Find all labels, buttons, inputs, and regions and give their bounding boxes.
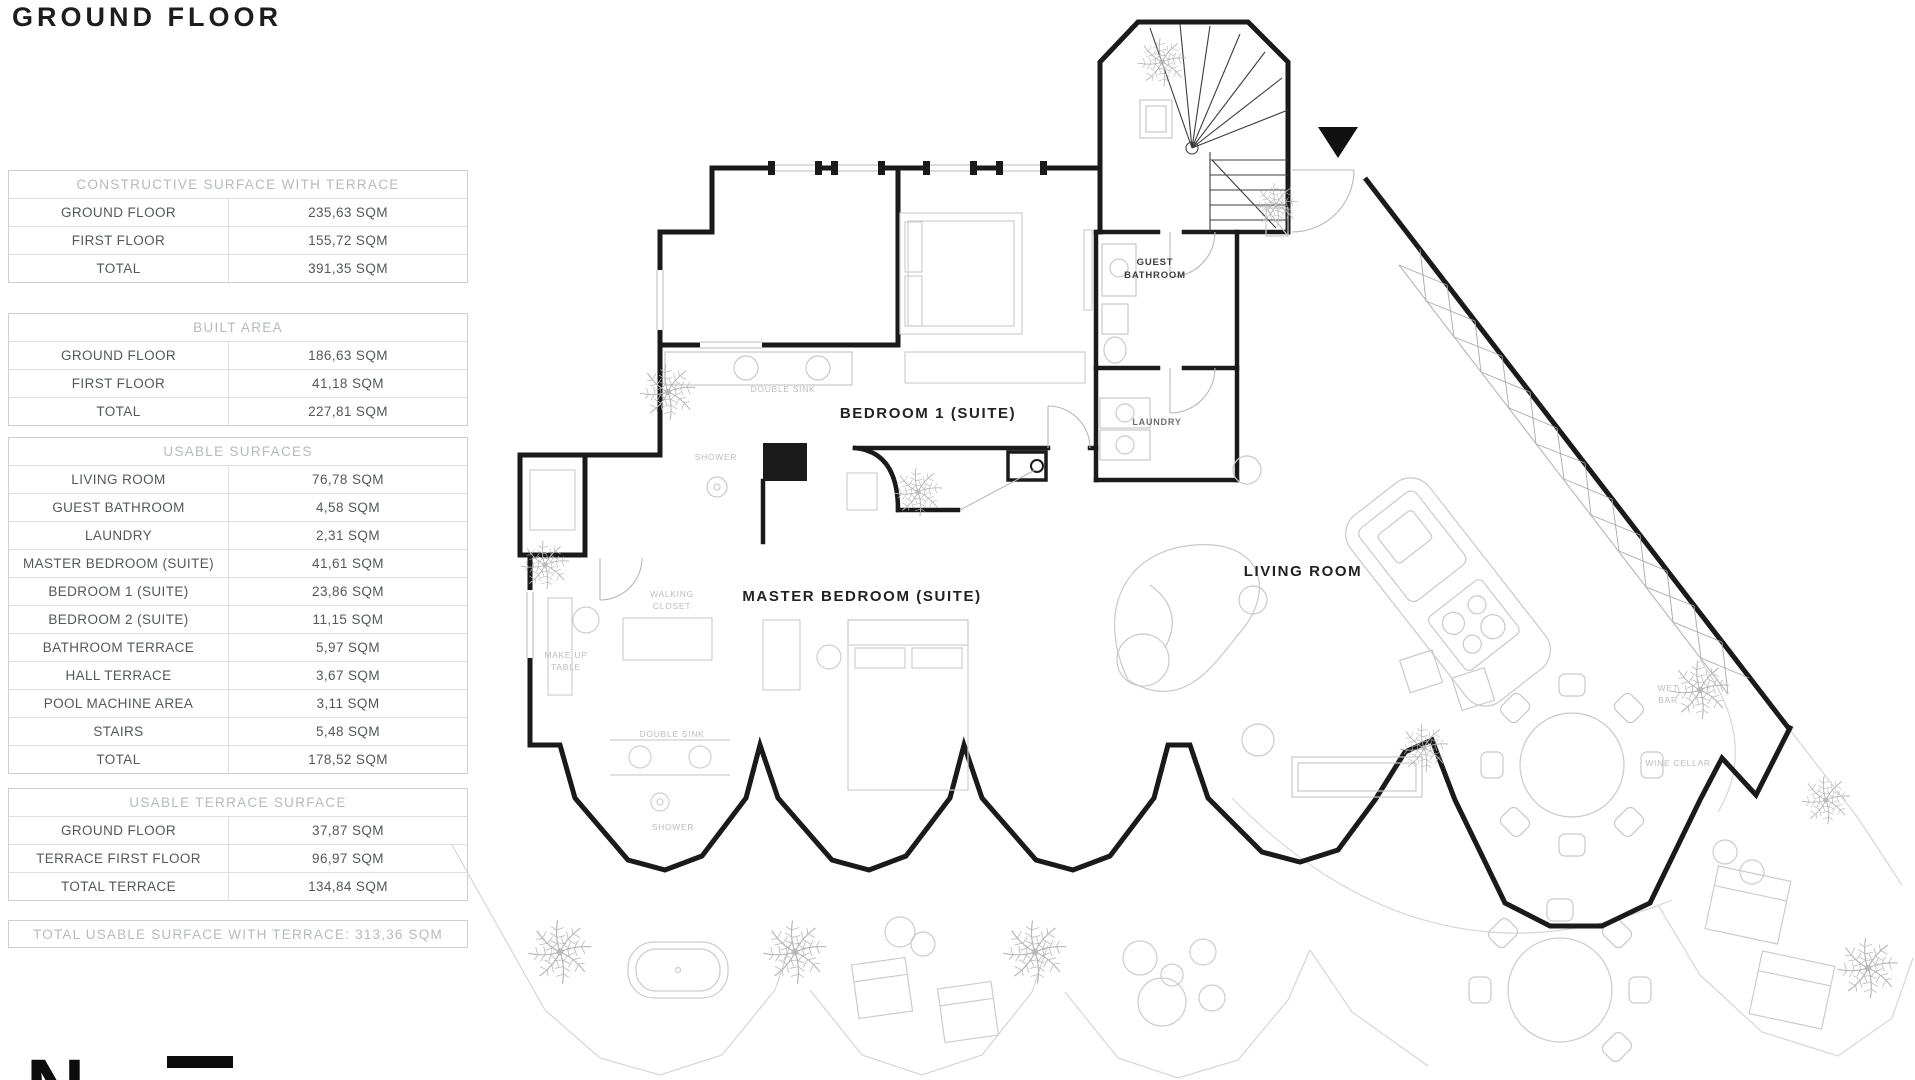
label-walking-closet: WALKING	[650, 589, 694, 599]
room-label-living-room: LIVING ROOM	[1244, 563, 1362, 580]
label-wet-bar: BAR	[1658, 695, 1678, 705]
palm-trees	[520, 37, 1898, 999]
makeup-table	[548, 598, 599, 695]
sun-lounger	[938, 982, 999, 1043]
stone-cluster	[1123, 939, 1225, 1026]
palm-tree-icon	[528, 920, 592, 984]
room-label-guest-bathroom: BATHROOM	[1124, 270, 1186, 281]
outer-walls	[520, 22, 1790, 926]
label-wet-bar: WET	[1658, 683, 1679, 693]
sun-lounger	[852, 958, 913, 1019]
palm-tree-icon	[1670, 660, 1729, 719]
bathroom-fixtures	[1100, 244, 1267, 614]
label-double-sink: DOUBLE SINK	[751, 384, 816, 394]
bathtub	[628, 942, 728, 998]
label-walking-closet: CLOSET	[653, 601, 691, 611]
palm-tree-icon	[1003, 920, 1067, 984]
palm-tree-icon	[520, 540, 569, 589]
master-double-sink	[610, 740, 730, 775]
room-label-master-bedroom: MASTER BEDROOM (SUITE)	[742, 588, 981, 605]
kitchen-island	[1303, 468, 1560, 741]
glass-wall	[1365, 178, 1790, 730]
master-furniture	[530, 470, 968, 811]
label-wine-cellar: WINE CELLAR	[1645, 758, 1710, 768]
label-double-sink: DOUBLE SINK	[640, 729, 705, 739]
entrance-arrow-icon	[1318, 127, 1358, 158]
master-shower-symbol	[651, 793, 669, 811]
room-label-laundry: LAUNDRY	[1132, 417, 1181, 427]
walking-closet-island	[623, 618, 712, 660]
floor-plan-svg: GUEST BATHROOM LAUNDRY BEDROOM 1 (SUITE)…	[0, 0, 1915, 1080]
interior-walls	[763, 232, 1288, 542]
shower-symbol	[707, 477, 727, 497]
tv-console	[1292, 757, 1422, 797]
sun-lounger	[1749, 951, 1835, 1029]
pool-machine-icon	[1031, 460, 1043, 472]
label-shower: SHOWER	[652, 822, 694, 832]
label-shower: SHOWER	[695, 452, 737, 462]
palm-tree-icon	[1837, 937, 1898, 999]
bed-bedroom1	[847, 213, 1092, 510]
sun-lounger	[1705, 866, 1791, 944]
living-furniture	[1115, 468, 1663, 856]
cooktop	[1426, 577, 1521, 672]
bed-master	[848, 620, 968, 790]
room-label-bedroom1: BEDROOM 1 (SUITE)	[840, 405, 1016, 422]
stairs	[1150, 24, 1288, 232]
page: GROUND FLOOR CONSTRUCTIVE SURFACE WITH T…	[0, 0, 1915, 1080]
dryer	[1100, 430, 1150, 460]
dining-table	[1481, 674, 1663, 856]
palm-tree-icon	[1801, 775, 1850, 824]
room-label-guest-bathroom: GUEST	[1137, 257, 1174, 268]
label-makeup-table: TABLE	[551, 662, 581, 672]
palm-tree-icon	[639, 364, 695, 421]
label-makeup-table: MAKE UP	[544, 650, 587, 660]
stair-window	[1140, 100, 1288, 236]
palm-tree-icon	[1137, 37, 1186, 86]
garden-objects	[628, 840, 1835, 1064]
palm-tree-icon	[763, 920, 827, 984]
wall-block	[763, 443, 807, 481]
bathroom1-fixtures	[665, 352, 852, 497]
